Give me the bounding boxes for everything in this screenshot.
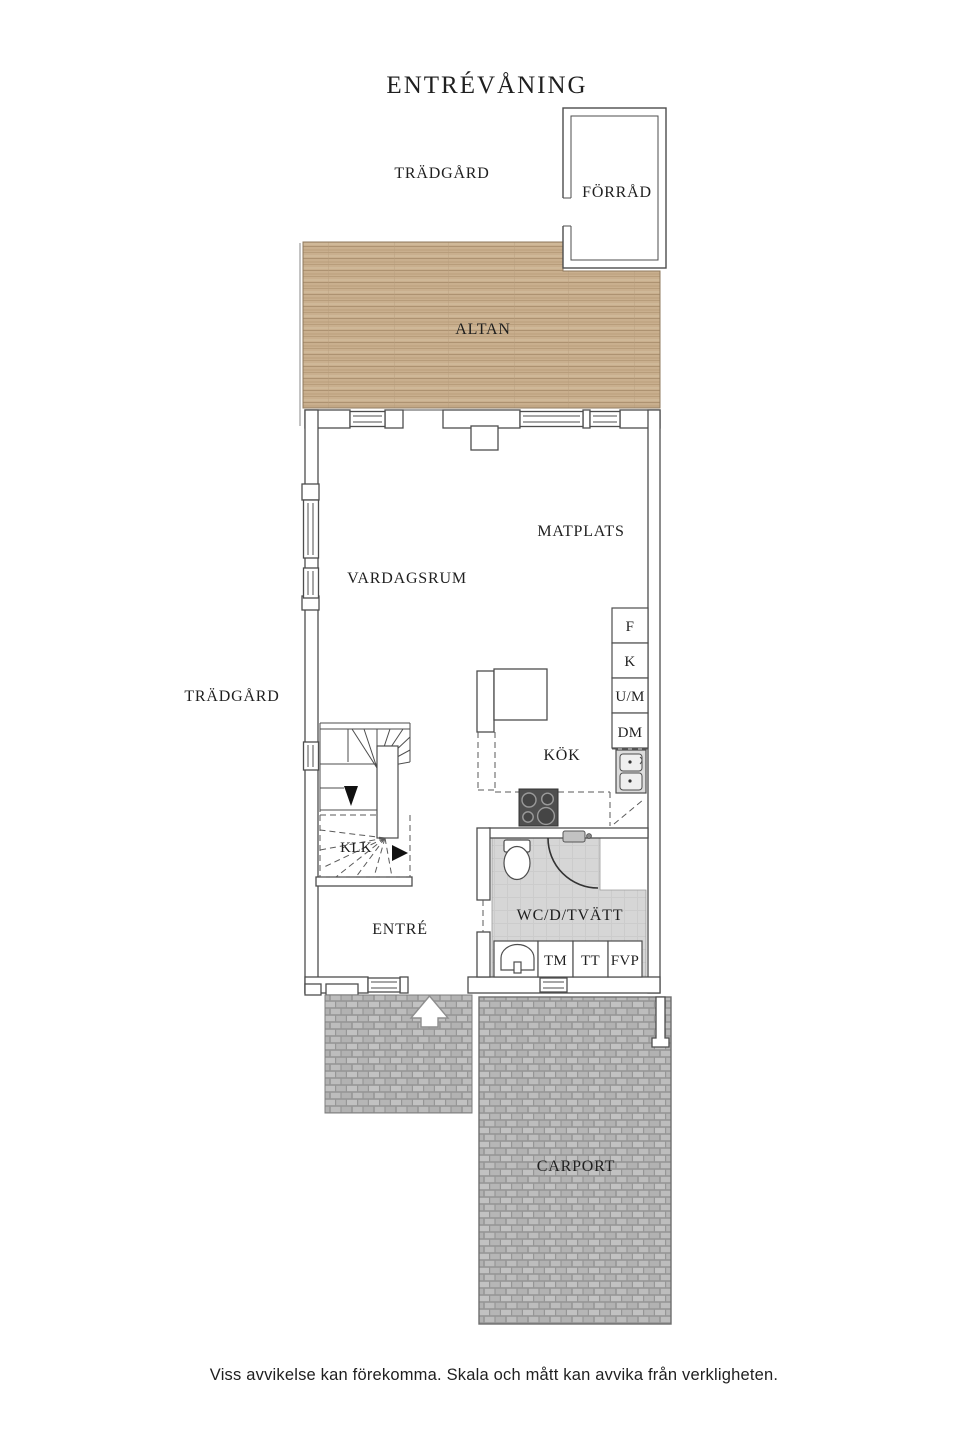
oven-micro-label: U/M: [615, 689, 644, 705]
fridge-label: K: [624, 654, 635, 670]
window: [304, 742, 319, 770]
window: [304, 500, 319, 558]
kok-label: KÖK: [543, 746, 580, 764]
kitchen-sink-icon: [616, 750, 646, 793]
wc-label: WC/D/TVÄTT: [517, 906, 624, 924]
window: [350, 412, 385, 427]
pantry-cabinet: [494, 669, 547, 720]
window: [520, 412, 583, 427]
forrad-label: FÖRRÅD: [582, 183, 652, 201]
forrad-door-opening: [561, 198, 572, 226]
entry-step: [305, 984, 321, 995]
bathroom-sink-icon: [494, 941, 538, 977]
entre-label: ENTRÉ: [372, 919, 428, 938]
window: [540, 978, 567, 992]
dryer-label: TT: [581, 953, 600, 969]
window: [304, 568, 319, 598]
toilet-icon: [504, 840, 530, 880]
washing-machine-label: TM: [544, 953, 567, 969]
freezer-label: F: [626, 619, 635, 635]
tradgard-left-label: TRÄDGÅRD: [184, 687, 279, 705]
carport-label: CARPORT: [537, 1158, 615, 1175]
matplats-label: MATPLATS: [537, 523, 624, 540]
chimney-notch: [471, 426, 498, 450]
entry-step: [326, 984, 358, 995]
stove-icon: [519, 789, 558, 826]
heat-pump-label: FVP: [611, 953, 639, 969]
dishwasher-label: DM: [618, 725, 643, 741]
window: [590, 412, 620, 427]
disclaimer-text: Viss avvikelse kan förekomma. Skala och …: [210, 1366, 778, 1384]
floor-plan-svg: ENTRÉVÅNING TRÄDGÅRD TRÄDGÅRD FÖRRÅD ALT…: [0, 0, 960, 1440]
floor-plan-page: ENTRÉVÅNING TRÄDGÅRD TRÄDGÅRD FÖRRÅD ALT…: [0, 0, 960, 1440]
vardagsrum-label: VARDAGSRUM: [347, 570, 467, 587]
klk-label: KLK: [340, 840, 372, 856]
stair-newel: [377, 746, 398, 838]
window: [368, 978, 400, 992]
page-title: ENTRÉVÅNING: [386, 71, 587, 99]
tradgard-top-label: TRÄDGÅRD: [394, 164, 489, 182]
altan-label: ALTAN: [455, 321, 510, 338]
entry-paving: [325, 995, 472, 1113]
